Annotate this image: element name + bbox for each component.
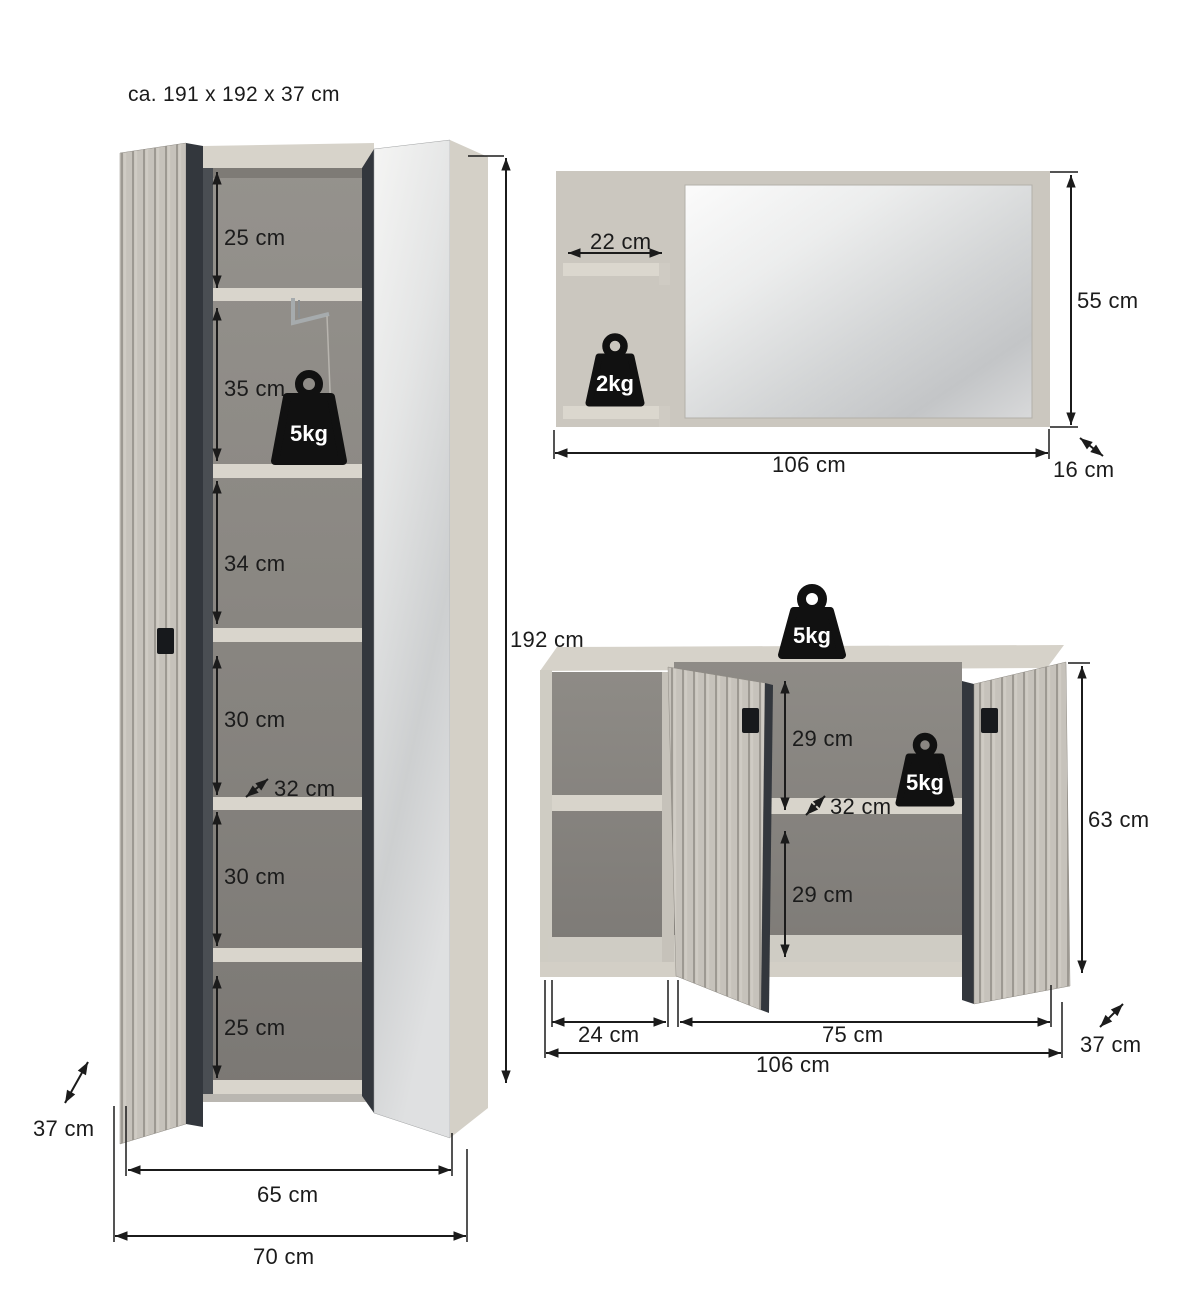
wardrobe-section-4-label: 30 cm: [224, 707, 285, 732]
wardrobe-bottom-rail: [203, 1094, 374, 1102]
sideboard-depth-arrow: [1100, 1004, 1123, 1027]
mirror-shelf-lower: [563, 406, 670, 419]
sideboard-shelf-max-load-label: 5kg: [906, 770, 944, 795]
mirror-panel: 2kg: [556, 171, 1050, 427]
wardrobe-section-5-label: 30 cm: [224, 864, 285, 889]
wardrobe-shelf-5: [213, 948, 362, 962]
sideboard-right-door-edge: [962, 681, 974, 1004]
mirror-width-label: 106 cm: [772, 452, 846, 477]
wardrobe-section-2-label: 35 cm: [224, 376, 285, 401]
wardrobe-shelf-1: [213, 288, 362, 301]
wardrobe-section-3-label: 34 cm: [224, 551, 285, 576]
sideboard-depth-label: 37 cm: [1080, 1032, 1141, 1057]
sideboard-height-label: 63 cm: [1088, 807, 1149, 832]
sideboard-shelf-depth-label: 32 cm: [830, 794, 891, 819]
wardrobe-door-handle: [157, 628, 174, 654]
mirror-max-load-label: 2kg: [596, 371, 634, 396]
wardrobe-left-door-edge: [186, 143, 203, 1127]
sideboard-upper-compartment-label: 29 cm: [792, 726, 853, 751]
weight-ring: [802, 589, 823, 610]
sideboard-lower-compartment-label: 29 cm: [792, 882, 853, 907]
overall-dimensions-title: ca. 191 x 192 x 37 cm: [128, 83, 340, 106]
sideboard-right-width-label: 75 cm: [822, 1022, 883, 1047]
wardrobe-mirror-door: [374, 140, 450, 1138]
mirror-depth-arrow: [1080, 438, 1103, 456]
wardrobe-depth-arrow: [65, 1062, 88, 1103]
wardrobe-interior-left-edge: [203, 168, 213, 1096]
wardrobe-top-panel: [203, 143, 374, 168]
mirror-height-label: 55 cm: [1077, 288, 1138, 313]
dimension-diagram: ca. 191 x 192 x 37 cm 5kg 25 cm 35: [0, 0, 1200, 1303]
mirror-depth-label: 16 cm: [1053, 457, 1114, 482]
wardrobe-left-door: [120, 143, 186, 1144]
wardrobe-side-panel: [450, 140, 488, 1138]
wardrobe-shelf-3: [213, 628, 362, 642]
wardrobe-section-6-label: 25 cm: [224, 1015, 285, 1040]
wardrobe-shelf-2: [213, 464, 362, 478]
wardrobe-floor: [213, 1080, 362, 1094]
wardrobe-depth-label: 37 cm: [33, 1116, 94, 1141]
wardrobe: 5kg: [120, 140, 488, 1144]
wardrobe-interior-top-shadow: [203, 168, 374, 178]
wardrobe-inner-width-label: 65 cm: [257, 1182, 318, 1207]
sideboard-left-shelf: [552, 795, 665, 811]
sideboard-top-max-load-label: 5kg: [793, 623, 831, 648]
mirror-shelf-upper-end: [659, 263, 670, 285]
wardrobe-shelf-depth-label: 32 cm: [274, 776, 335, 801]
mirror-shelf-upper: [563, 263, 670, 276]
sideboard-width-label: 106 cm: [756, 1052, 830, 1077]
wardrobe-outer-width-label: 70 cm: [253, 1244, 314, 1269]
sideboard: 5kg 5kg: [540, 589, 1070, 1014]
sideboard-left-side: [540, 670, 552, 977]
mirror-glass: [685, 185, 1032, 418]
mirror-shelf-width-label: 22 cm: [590, 229, 651, 254]
sideboard-top-weight-limit-icon: 5kg: [782, 589, 842, 656]
wardrobe-mirror-door-edge: [362, 149, 374, 1113]
wardrobe-section-1-label: 25 cm: [224, 225, 285, 250]
mirror-shelf-lower-end: [659, 406, 670, 427]
sideboard-left-width-label: 24 cm: [578, 1022, 639, 1047]
wardrobe-max-load-label: 5kg: [290, 421, 328, 446]
diagram-canvas: ca. 191 x 192 x 37 cm 5kg 25 cm 35: [0, 0, 1200, 1303]
sideboard-right-door-handle: [981, 708, 998, 733]
sideboard-middle-door-handle: [742, 708, 759, 733]
